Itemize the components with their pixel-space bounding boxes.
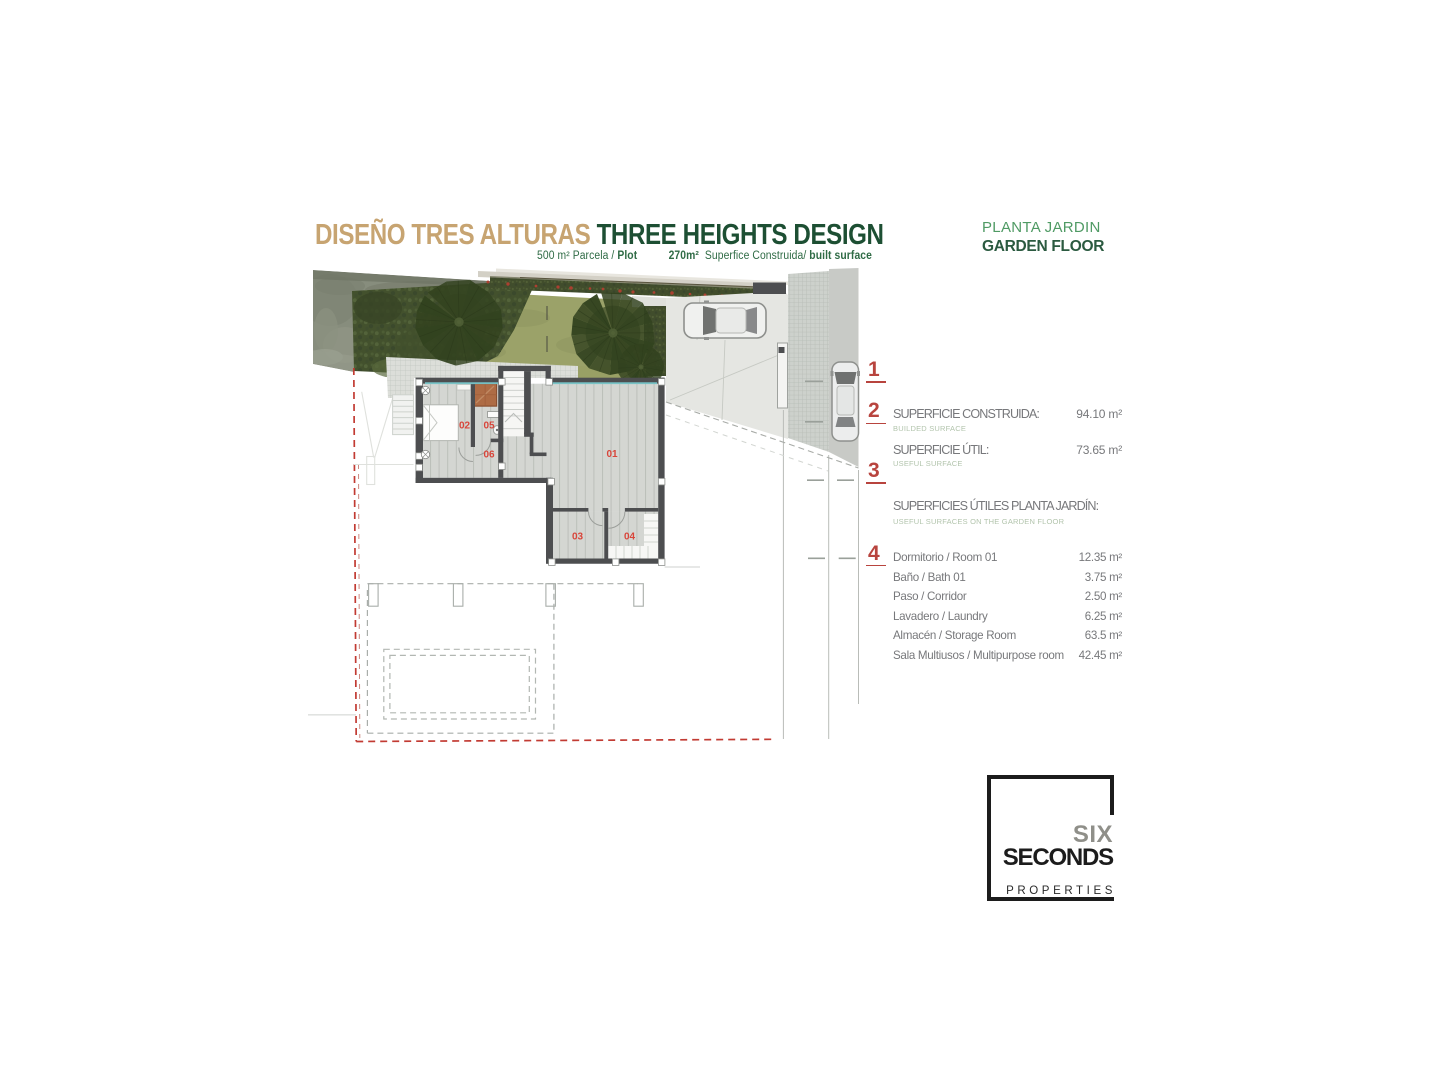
svg-text:01: 01 — [606, 449, 618, 460]
svg-text:04: 04 — [624, 532, 636, 543]
svg-text:02: 02 — [459, 421, 471, 432]
svg-text:05: 05 — [483, 421, 495, 432]
svg-text:06: 06 — [483, 450, 495, 461]
svg-text:03: 03 — [572, 532, 584, 543]
